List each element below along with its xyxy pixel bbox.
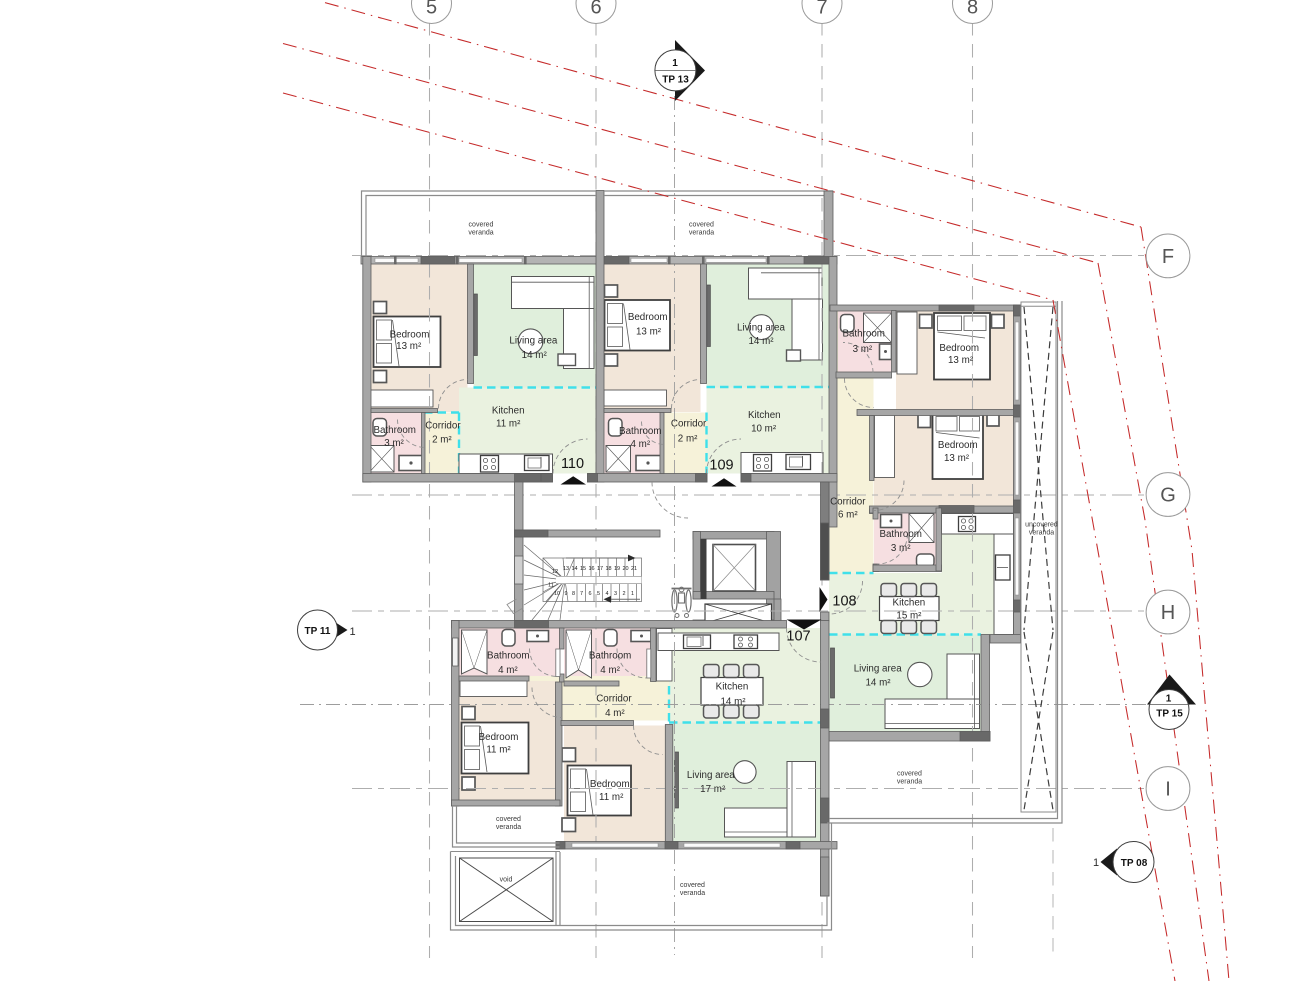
svg-text:Living area: Living area bbox=[854, 664, 902, 675]
svg-text:Bathroom: Bathroom bbox=[487, 650, 529, 661]
svg-text:F: F bbox=[1162, 246, 1174, 268]
svg-text:17: 17 bbox=[597, 566, 603, 572]
svg-text:H: H bbox=[1161, 602, 1175, 624]
svg-text:Corridor: Corridor bbox=[830, 496, 866, 507]
svg-text:Living area: Living area bbox=[509, 336, 557, 347]
svg-text:6: 6 bbox=[588, 591, 591, 597]
svg-text:1: 1 bbox=[631, 591, 634, 597]
svg-text:covered: covered bbox=[680, 882, 705, 889]
svg-text:14: 14 bbox=[571, 566, 577, 572]
svg-text:Bathroom: Bathroom bbox=[842, 329, 884, 340]
svg-text:13 m²: 13 m² bbox=[396, 341, 422, 352]
svg-text:Kitchen: Kitchen bbox=[716, 682, 749, 693]
svg-text:4 m²: 4 m² bbox=[630, 439, 650, 450]
svg-text:18: 18 bbox=[605, 566, 611, 572]
svg-text:veranda: veranda bbox=[496, 824, 521, 831]
svg-text:Corridor: Corridor bbox=[425, 420, 461, 431]
svg-text:5: 5 bbox=[597, 591, 600, 597]
svg-text:1: 1 bbox=[672, 58, 678, 69]
svg-text:11 m²: 11 m² bbox=[599, 792, 624, 803]
svg-text:11 m²: 11 m² bbox=[486, 745, 511, 756]
svg-text:8: 8 bbox=[967, 0, 978, 19]
svg-text:13 m²: 13 m² bbox=[636, 327, 662, 338]
svg-text:covered: covered bbox=[469, 222, 494, 229]
svg-text:1: 1 bbox=[349, 626, 355, 638]
svg-text:Living area: Living area bbox=[737, 323, 785, 334]
svg-text:Bedroom: Bedroom bbox=[479, 732, 519, 743]
svg-text:6 m²: 6 m² bbox=[838, 510, 858, 521]
svg-text:veranda: veranda bbox=[1029, 529, 1054, 536]
svg-text:4 m²: 4 m² bbox=[498, 665, 518, 676]
svg-text:110: 110 bbox=[561, 456, 584, 472]
svg-text:2: 2 bbox=[622, 591, 625, 597]
svg-text:4 m²: 4 m² bbox=[600, 665, 620, 676]
svg-text:1: 1 bbox=[1093, 857, 1099, 869]
svg-text:covered: covered bbox=[897, 771, 922, 778]
svg-text:covered: covered bbox=[689, 222, 714, 229]
svg-text:veranda: veranda bbox=[680, 890, 705, 897]
svg-text:13 m²: 13 m² bbox=[948, 355, 974, 366]
svg-text:15 m²: 15 m² bbox=[896, 610, 922, 621]
svg-text:2 m²: 2 m² bbox=[678, 433, 698, 444]
svg-text:veranda: veranda bbox=[689, 229, 714, 236]
svg-text:TP 15: TP 15 bbox=[1156, 709, 1183, 720]
svg-text:Bedroom: Bedroom bbox=[390, 330, 430, 341]
svg-text:13 m²: 13 m² bbox=[944, 453, 970, 464]
svg-text:14 m²: 14 m² bbox=[720, 697, 746, 708]
svg-text:13: 13 bbox=[563, 566, 569, 572]
svg-text:TP 13: TP 13 bbox=[662, 75, 689, 86]
svg-text:4: 4 bbox=[605, 591, 608, 597]
svg-text:TP 08: TP 08 bbox=[1121, 858, 1148, 869]
svg-text:Kitchen: Kitchen bbox=[748, 410, 781, 421]
svg-text:21: 21 bbox=[631, 566, 637, 572]
svg-text:10: 10 bbox=[554, 591, 560, 597]
svg-text:17 m²: 17 m² bbox=[700, 784, 726, 795]
svg-text:14 m²: 14 m² bbox=[865, 678, 891, 689]
svg-text:Kitchen: Kitchen bbox=[492, 406, 525, 417]
svg-text:20: 20 bbox=[622, 566, 628, 572]
svg-text:6: 6 bbox=[590, 0, 601, 19]
svg-text:veranda: veranda bbox=[468, 229, 493, 236]
svg-text:Bathroom: Bathroom bbox=[373, 425, 415, 436]
svg-text:2 m²: 2 m² bbox=[432, 434, 452, 445]
svg-text:108: 108 bbox=[832, 594, 856, 610]
svg-text:107: 107 bbox=[786, 629, 810, 645]
svg-text:void: void bbox=[500, 877, 513, 884]
svg-text:109: 109 bbox=[709, 458, 733, 474]
svg-text:Bathroom: Bathroom bbox=[589, 650, 631, 661]
svg-text:5: 5 bbox=[426, 0, 437, 19]
svg-text:12: 12 bbox=[552, 569, 558, 575]
svg-text:8: 8 bbox=[572, 591, 575, 597]
svg-text:TP 11: TP 11 bbox=[305, 626, 331, 637]
svg-text:I: I bbox=[1165, 779, 1171, 801]
svg-text:7: 7 bbox=[816, 0, 827, 19]
svg-text:3 m²: 3 m² bbox=[853, 344, 873, 355]
svg-text:14 m²: 14 m² bbox=[522, 350, 548, 361]
svg-text:15: 15 bbox=[580, 566, 586, 572]
svg-text:11 m²: 11 m² bbox=[496, 419, 521, 430]
svg-text:3: 3 bbox=[614, 591, 617, 597]
svg-text:uncovered: uncovered bbox=[1025, 522, 1058, 529]
svg-text:9: 9 bbox=[564, 591, 567, 597]
svg-text:3 m²: 3 m² bbox=[384, 438, 404, 449]
svg-text:3 m²: 3 m² bbox=[891, 543, 911, 554]
svg-text:4 m²: 4 m² bbox=[605, 708, 625, 719]
svg-text:Kitchen: Kitchen bbox=[893, 597, 926, 608]
svg-text:G: G bbox=[1160, 485, 1176, 507]
svg-text:10 m²: 10 m² bbox=[751, 424, 777, 435]
svg-text:11: 11 bbox=[548, 583, 554, 589]
svg-text:1: 1 bbox=[1166, 694, 1172, 705]
svg-text:Bedroom: Bedroom bbox=[590, 779, 630, 790]
svg-text:Bedroom: Bedroom bbox=[628, 312, 668, 323]
svg-text:14 m²: 14 m² bbox=[748, 336, 774, 347]
svg-text:16: 16 bbox=[588, 566, 594, 572]
svg-text:7: 7 bbox=[580, 591, 583, 597]
svg-text:Corridor: Corridor bbox=[596, 693, 632, 704]
svg-text:Bathroom: Bathroom bbox=[879, 529, 921, 540]
svg-text:Bathroom: Bathroom bbox=[619, 426, 661, 437]
svg-text:Bedroom: Bedroom bbox=[938, 440, 978, 451]
svg-text:Bedroom: Bedroom bbox=[939, 343, 979, 354]
svg-text:Living area: Living area bbox=[687, 770, 735, 781]
svg-text:covered: covered bbox=[496, 816, 521, 823]
svg-text:Corridor: Corridor bbox=[671, 419, 707, 430]
svg-text:veranda: veranda bbox=[897, 779, 922, 786]
svg-text:19: 19 bbox=[614, 566, 620, 572]
